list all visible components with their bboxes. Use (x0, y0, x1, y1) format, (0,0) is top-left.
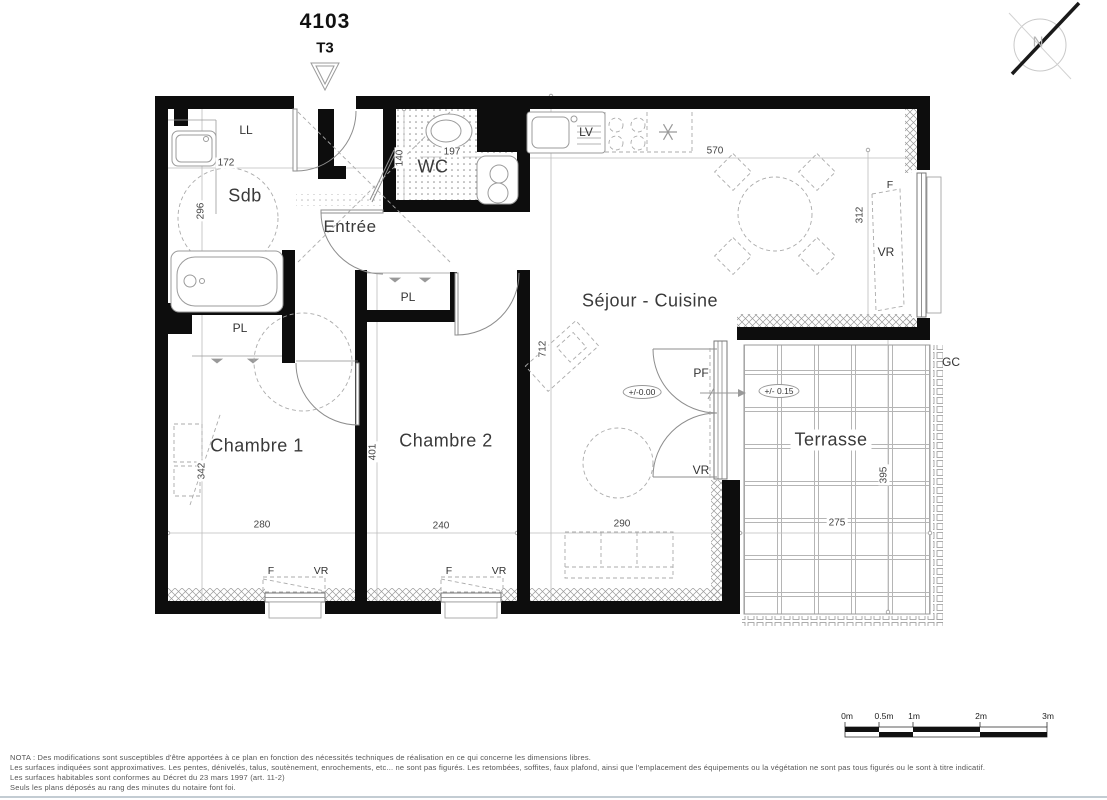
room-label-sdb: Sdb (228, 186, 262, 207)
label-window-chambre1: F (268, 565, 274, 577)
label-dishwasher: LV (579, 125, 593, 139)
window-sejour (912, 170, 945, 318)
chambre2-door (455, 273, 519, 335)
room-label-sejour-cuisine: Séjour - Cuisine (582, 291, 718, 312)
north-compass-icon (1009, 3, 1079, 79)
dim-wc-depth: 140 (395, 148, 406, 169)
label-window-chambre2: F (446, 565, 452, 577)
nota-line-1: NOTA : Des modifications sont susceptibl… (10, 753, 591, 762)
label-washing-machine: LL (239, 123, 252, 137)
floor-plan-page: 4103 T3 N Sdb Entrée WC Séjour - Cuisine… (0, 0, 1107, 800)
room-label-wc: WC (418, 157, 449, 178)
room-label-terrasse: Terrasse (790, 430, 871, 451)
unit-number: 4103 (300, 10, 351, 34)
nota-line-3: Les surfaces habitables sont conformes a… (10, 773, 285, 782)
kitchen-sink-unit (527, 112, 605, 153)
scale-label-2m: 2m (975, 711, 987, 721)
label-closet-chambre1: PL (233, 321, 248, 335)
unit-type: T3 (316, 40, 334, 57)
chambre1-door (296, 361, 359, 425)
chambre1-wardrobe (174, 412, 221, 505)
sofa (565, 532, 673, 578)
dining-table (738, 177, 812, 251)
dining-chair (715, 238, 752, 275)
level-marker-sejour: +/-0.00 (623, 385, 662, 399)
dim-wc-width: 197 (442, 147, 463, 158)
french-window-frame (714, 341, 727, 479)
dim-sdb-width: 172 (216, 158, 237, 169)
scale-label-1m: 1m (908, 711, 920, 721)
nota-line-2: Les surfaces indiquées sont approximativ… (10, 763, 985, 772)
north-label: N (1033, 34, 1044, 51)
dim-sdb-depth: 296 (196, 201, 207, 222)
label-shutter-sejour: VR (878, 245, 895, 259)
scale-label-05m: 0.5m (875, 711, 894, 721)
dim-chambre1-wardrobe: 342 (197, 461, 208, 482)
turning-circle-sejour (583, 428, 653, 498)
desk (525, 321, 598, 392)
window-chambre1 (265, 588, 325, 618)
toilet (426, 114, 472, 148)
label-closet-chambre2: PL (401, 290, 416, 304)
room-label-chambre1: Chambre 1 (210, 436, 304, 457)
room-label-chambre2: Chambre 2 (399, 431, 493, 452)
cooktop-burners (605, 112, 692, 152)
window-chambre2 (441, 588, 501, 618)
floor-plan-drawing (0, 0, 1107, 800)
label-railing: GC (942, 355, 960, 369)
dim-chambre2-depth: 401 (368, 442, 379, 463)
turning-circle-corridor (254, 313, 352, 411)
label-shutter-chambre1: VR (314, 565, 329, 577)
snowflake-icon (659, 124, 677, 140)
scale-label-0m: 0m (841, 711, 853, 721)
scale-bar (845, 722, 1047, 737)
entrance-arrow (311, 63, 339, 90)
scale-label-3m: 3m (1042, 711, 1054, 721)
room-label-entree: Entrée (323, 217, 376, 237)
dining-chair (799, 154, 836, 191)
label-shutter-chambre2: VR (492, 565, 507, 577)
dim-terrasse-depth: 395 (879, 465, 890, 486)
dining-chair (715, 154, 752, 191)
washbasin (168, 120, 216, 214)
dim-chambre2-width: 240 (431, 521, 452, 532)
level-marker-terrasse: +/- 0.15 (758, 384, 799, 398)
nota-line-4: Seuls les plans déposés au rang des minu… (10, 783, 236, 792)
bathtub (171, 251, 283, 312)
dim-sejour-width: 290 (612, 519, 633, 530)
label-window-sejour: F (887, 179, 893, 191)
label-shutter-terrace-door: VR (693, 463, 710, 477)
dim-sejour-depth: 712 (538, 339, 549, 360)
dining-chair (799, 238, 836, 275)
dim-sejour-window: 312 (855, 205, 866, 226)
water-heater (477, 156, 518, 204)
dim-terrasse-width: 275 (827, 518, 848, 529)
footer-divider (0, 796, 1107, 798)
dim-chambre1-width: 280 (252, 520, 273, 531)
dim-kitchen-width: 570 (705, 146, 726, 157)
label-french-window: PF (693, 366, 708, 380)
